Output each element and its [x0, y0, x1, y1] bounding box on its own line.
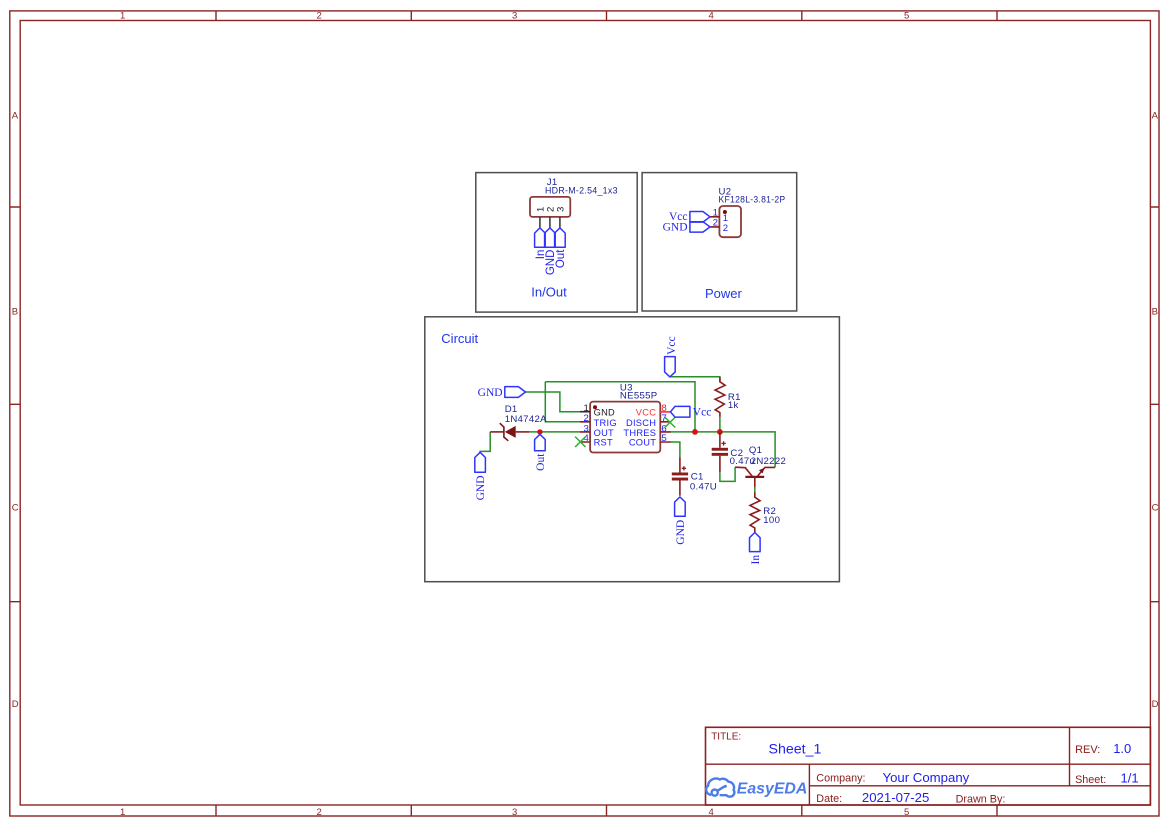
svg-text:5: 5 — [661, 433, 666, 444]
svg-text:B: B — [12, 307, 18, 318]
svg-text:COUT: COUT — [629, 438, 656, 448]
svg-text:KF128L-3.81-2P: KF128L-3.81-2P — [719, 195, 786, 206]
svg-text:Out: Out — [535, 453, 547, 471]
svg-text:1: 1 — [120, 11, 125, 22]
svg-text:GND: GND — [475, 476, 487, 501]
svg-text:C: C — [12, 503, 19, 514]
svg-text:1/1: 1/1 — [1121, 771, 1139, 786]
svg-text:EasyEDA: EasyEDA — [737, 780, 808, 797]
svg-text:THRES: THRES — [623, 428, 656, 438]
svg-text:1N4742A: 1N4742A — [505, 414, 547, 425]
svg-text:In/Out: In/Out — [531, 284, 567, 299]
svg-text:B: B — [1152, 307, 1158, 318]
svg-text:1k: 1k — [728, 400, 739, 411]
svg-text:TRIG: TRIG — [594, 418, 617, 428]
svg-text:3: 3 — [555, 207, 566, 212]
svg-text:Vcc: Vcc — [693, 406, 712, 418]
svg-text:D: D — [12, 699, 19, 710]
svg-text:C: C — [1152, 503, 1159, 514]
svg-text:TITLE:: TITLE: — [711, 732, 741, 743]
svg-text:A: A — [1152, 111, 1159, 122]
svg-text:A: A — [12, 111, 19, 122]
svg-text:2: 2 — [713, 218, 718, 229]
svg-text:2: 2 — [317, 11, 322, 22]
svg-text:Company:: Company: — [816, 773, 865, 785]
svg-text:3: 3 — [512, 11, 517, 22]
svg-text:4: 4 — [709, 807, 714, 818]
svg-text:1.0: 1.0 — [1113, 741, 1131, 756]
svg-text:OUT: OUT — [594, 428, 614, 438]
svg-text:1: 1 — [583, 403, 588, 414]
svg-text:1: 1 — [120, 807, 125, 818]
svg-text:Sheet_1: Sheet_1 — [769, 742, 822, 758]
svg-text:Q1: Q1 — [749, 445, 762, 456]
svg-text:HDR-M-2.54_1x3: HDR-M-2.54_1x3 — [545, 186, 618, 197]
svg-text:GND: GND — [478, 387, 503, 399]
svg-text:NE555P: NE555P — [620, 390, 658, 401]
svg-text:RST: RST — [594, 438, 613, 448]
svg-text:3: 3 — [512, 807, 517, 818]
svg-text:Date:: Date: — [816, 793, 842, 805]
svg-text:Power: Power — [705, 286, 743, 301]
svg-text:Out: Out — [555, 249, 567, 268]
svg-text:DISCH: DISCH — [626, 418, 656, 428]
svg-text:2N2222: 2N2222 — [751, 456, 786, 467]
svg-text:Your Company: Your Company — [883, 770, 970, 785]
svg-text:2021-07-25: 2021-07-25 — [862, 790, 929, 805]
svg-text:Sheet:: Sheet: — [1075, 774, 1106, 786]
svg-text:Drawn By:: Drawn By: — [956, 793, 1006, 805]
svg-text:GND: GND — [675, 520, 687, 545]
svg-text:REV:: REV: — [1075, 744, 1100, 756]
svg-text:8: 8 — [661, 403, 666, 414]
svg-text:4: 4 — [709, 11, 714, 22]
svg-text:In: In — [750, 555, 762, 565]
svg-text:Circuit: Circuit — [441, 331, 478, 346]
svg-text:VCC: VCC — [636, 408, 656, 418]
svg-text:2: 2 — [317, 807, 322, 818]
svg-text:100: 100 — [763, 515, 780, 526]
svg-text:GND: GND — [594, 408, 615, 418]
svg-text:5: 5 — [904, 11, 909, 22]
svg-text:Vcc: Vcc — [666, 336, 678, 355]
svg-text:2: 2 — [723, 223, 728, 234]
svg-text:D: D — [1152, 699, 1159, 710]
svg-text:0.47U: 0.47U — [690, 482, 717, 493]
svg-text:5: 5 — [904, 807, 909, 818]
svg-text:GND: GND — [663, 221, 688, 233]
